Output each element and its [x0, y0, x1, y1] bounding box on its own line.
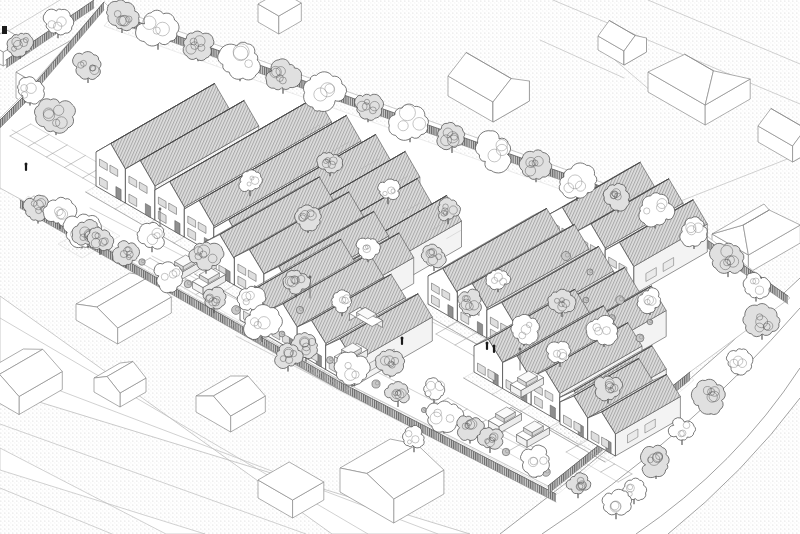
tree	[183, 31, 214, 61]
tree	[640, 445, 669, 478]
sign-marks	[2, 26, 7, 34]
axonometric-site-plan-figure	[0, 0, 800, 534]
site-plan-drawing	[0, 0, 800, 534]
